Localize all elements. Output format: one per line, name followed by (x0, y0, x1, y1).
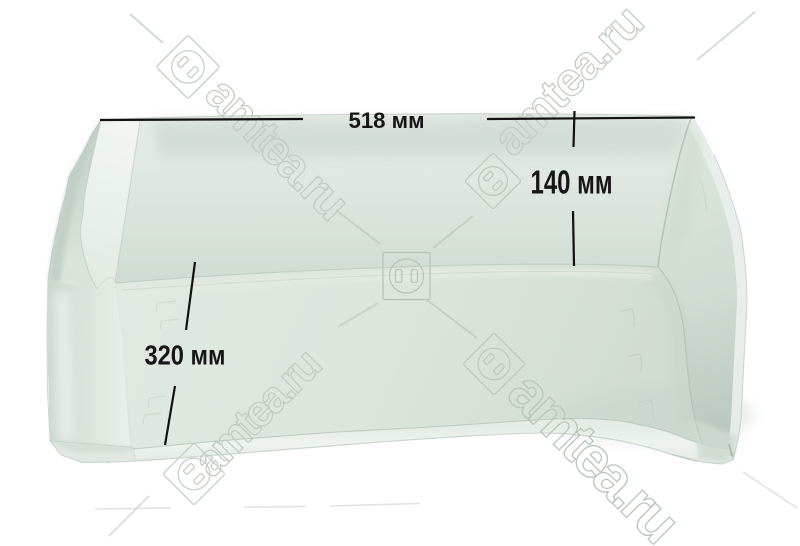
svg-text:518 мм: 518 мм (348, 108, 424, 133)
svg-text:140 мм: 140 мм (531, 165, 613, 202)
svg-text:320 мм: 320 мм (145, 341, 226, 371)
